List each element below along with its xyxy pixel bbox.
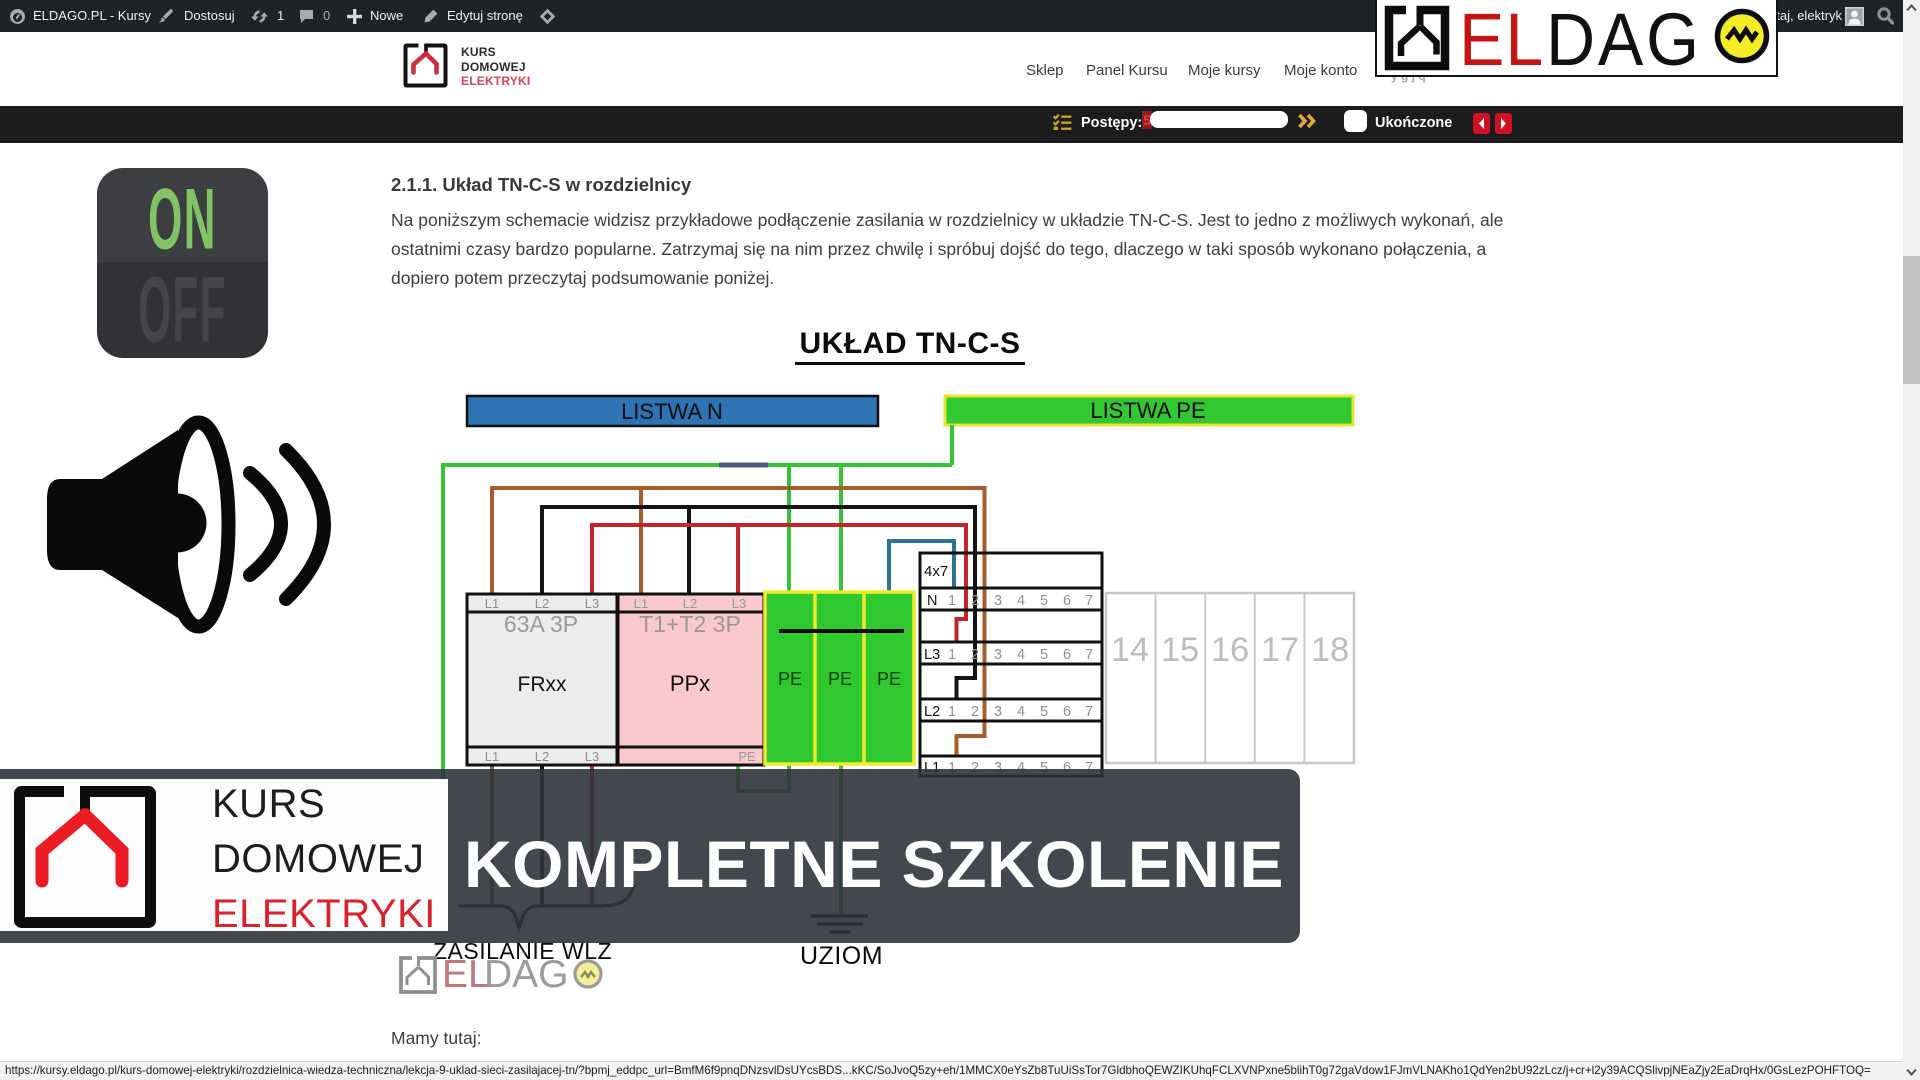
svg-text:5: 5 bbox=[1040, 704, 1048, 720]
svg-text:L3: L3 bbox=[924, 647, 940, 663]
svg-text:L2: L2 bbox=[924, 704, 940, 720]
svg-text:4: 4 bbox=[1017, 593, 1025, 609]
svg-text:16: 16 bbox=[1211, 631, 1249, 669]
svg-text:3: 3 bbox=[994, 704, 1002, 720]
svg-text:5: 5 bbox=[1040, 647, 1048, 663]
svg-text:15: 15 bbox=[1161, 631, 1199, 669]
svg-text:18: 18 bbox=[1311, 631, 1349, 669]
svg-text:7: 7 bbox=[1085, 593, 1093, 609]
svg-text:T1+T2 3P: T1+T2 3P bbox=[639, 611, 741, 637]
svg-text:2: 2 bbox=[971, 593, 979, 609]
svg-text:2: 2 bbox=[971, 647, 979, 663]
svg-text:4: 4 bbox=[1017, 647, 1025, 663]
svg-text:2: 2 bbox=[971, 704, 979, 720]
svg-text:4x7: 4x7 bbox=[924, 563, 948, 580]
svg-text:14: 14 bbox=[1111, 631, 1149, 669]
svg-text:EL: EL bbox=[442, 955, 490, 995]
svg-text:L2: L2 bbox=[535, 749, 549, 764]
svg-text:L1: L1 bbox=[634, 596, 648, 611]
svg-text:PPx: PPx bbox=[670, 671, 710, 696]
svg-text:LISTWA PE: LISTWA PE bbox=[1090, 398, 1205, 423]
svg-text:L1: L1 bbox=[485, 596, 499, 611]
svg-text:7: 7 bbox=[1085, 704, 1093, 720]
svg-text:4: 4 bbox=[1017, 704, 1025, 720]
svg-text:1: 1 bbox=[948, 593, 956, 609]
svg-text:PE: PE bbox=[828, 669, 852, 689]
svg-text:FRxx: FRxx bbox=[518, 673, 567, 696]
svg-text:LISTWA N: LISTWA N bbox=[621, 399, 723, 424]
svg-text:6: 6 bbox=[1063, 704, 1071, 720]
svg-text:PE: PE bbox=[877, 669, 901, 689]
svg-text:N: N bbox=[927, 593, 937, 609]
svg-text:5: 5 bbox=[1040, 593, 1048, 609]
svg-text:1: 1 bbox=[948, 647, 956, 663]
svg-text:7: 7 bbox=[1085, 647, 1093, 663]
svg-text:DAG: DAG bbox=[484, 955, 569, 995]
svg-text:17: 17 bbox=[1261, 631, 1299, 669]
svg-text:L3: L3 bbox=[585, 596, 599, 611]
svg-text:L3: L3 bbox=[732, 596, 746, 611]
svg-text:6: 6 bbox=[1063, 647, 1071, 663]
svg-text:63A 3P: 63A 3P bbox=[504, 611, 578, 637]
svg-text:PE: PE bbox=[778, 669, 802, 689]
svg-text:3: 3 bbox=[994, 593, 1002, 609]
svg-text:6: 6 bbox=[1063, 593, 1071, 609]
svg-text:3: 3 bbox=[994, 647, 1002, 663]
svg-text:PE: PE bbox=[738, 749, 756, 764]
svg-text:L2: L2 bbox=[535, 596, 549, 611]
svg-text:L1: L1 bbox=[485, 749, 499, 764]
svg-text:L2: L2 bbox=[683, 596, 697, 611]
svg-text:L3: L3 bbox=[585, 749, 599, 764]
svg-text:1: 1 bbox=[948, 704, 956, 720]
